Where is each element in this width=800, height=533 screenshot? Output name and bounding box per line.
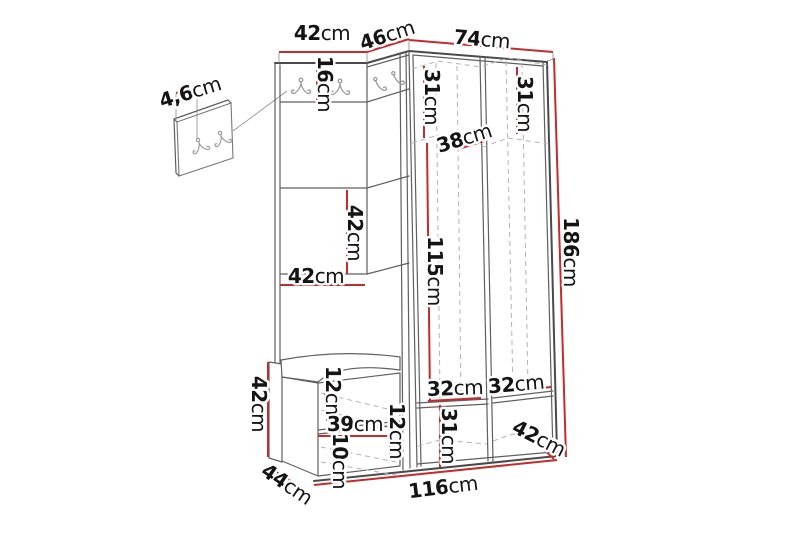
label-upper-shelf-height-right: 31cm [513,76,537,132]
label-upper-shelf-height-left: 31cm [420,69,444,125]
label-bench-base-height: 10cm [328,433,352,489]
wardrobe-left-edge [409,52,421,467]
label-wardrobe-width: 74cm [453,25,511,54]
label-total-height: 186cm [559,217,583,287]
corner-rail-bottom [367,89,409,102]
label-lower-shelf-width-right: 32cm [487,370,545,399]
bench-angled-face [282,377,318,476]
label-hook-plate-width: 4,6cm [156,71,224,112]
detail-leader-line [233,91,287,131]
label-back-panel-width: 42cm [288,264,344,288]
label-lower-section-height: 31cm [437,408,461,464]
left-edge [275,63,280,363]
corner-panel-bottom [367,263,409,274]
dimension-diagram: 42cm 46cm 74cm 16cm 31cm 31cm 38cm 186cm… [0,0,800,533]
label-top-section-width: 42cm [294,21,350,45]
dimension-labels: 42cm 46cm 74cm 16cm 31cm 31cm 38cm 186cm… [156,15,583,510]
label-total-width: 116cm [407,471,479,503]
double-coat-hook-icon [291,78,310,93]
label-open-section-height: 115cm [423,236,447,306]
label-wardrobe-depth: 42cm [508,415,569,462]
label-lower-shelf-width-left: 32cm [426,375,483,401]
label-bench-inner-height: 12cm [385,403,409,459]
label-bench-side-height: 42cm [247,376,271,432]
corner-division [367,176,409,188]
label-corner-section-width: 46cm [357,15,418,55]
single-coat-hook-icon [391,70,404,87]
label-hook-rail-height: 16cm [313,56,337,112]
coat-hooks [291,70,404,95]
diagram-canvas: 42cm 46cm 74cm 16cm 31cm 31cm 38cm 186cm… [0,0,800,533]
label-back-panel-height: 42cm [343,205,367,261]
label-bench-depth: 44cm [257,458,317,509]
single-coat-hook-icon [373,76,386,93]
detail-panel-face [177,103,233,176]
